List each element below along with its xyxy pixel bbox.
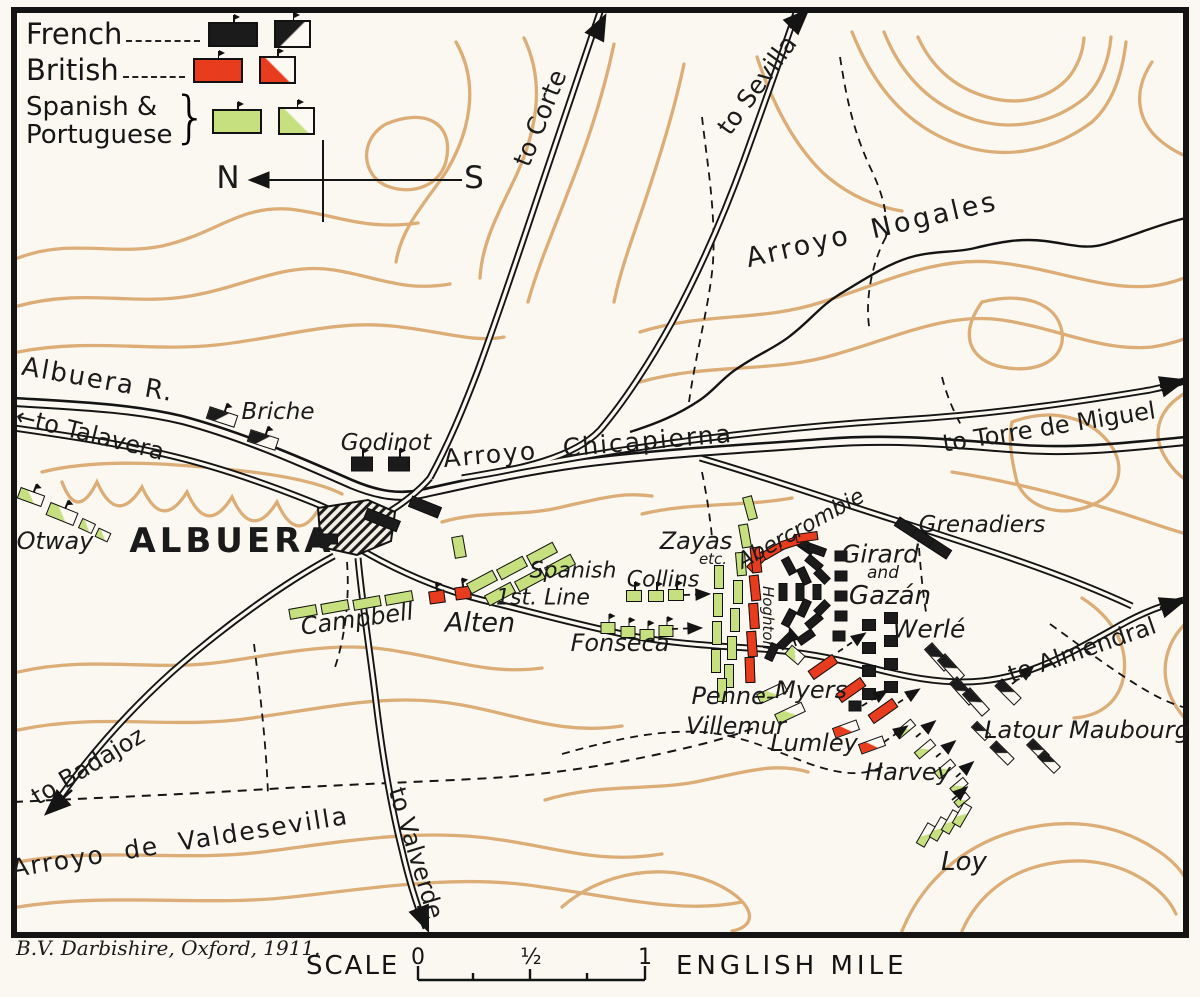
label-to-corte: to Corte bbox=[508, 66, 573, 171]
flag-icon bbox=[237, 102, 239, 111]
scale-tick-half: ½ bbox=[520, 945, 541, 970]
legend-label-spanish-portuguese: Spanish & Portuguese bbox=[26, 93, 173, 149]
label-and: and bbox=[867, 563, 899, 583]
label-arroyo-de-valdesevilla: Arroyo de Valdesevilla bbox=[9, 801, 351, 883]
label-alten: Alten bbox=[445, 608, 515, 639]
label-loy: Loy bbox=[941, 847, 987, 877]
label-to-almendral: to Almendral bbox=[1004, 612, 1159, 689]
label-godinot: Godinot bbox=[341, 430, 432, 456]
label-to-sevilla: to Sevilla bbox=[711, 30, 802, 140]
label-etc: etc. bbox=[699, 550, 727, 568]
legend-leader bbox=[126, 40, 200, 42]
label-grenadiers: Grenadiers bbox=[919, 512, 1046, 538]
legend-swatch-british-solid bbox=[193, 58, 243, 83]
legend-label-british: British bbox=[26, 53, 119, 87]
label-albuera: ALBUERA bbox=[129, 521, 334, 561]
label-briche: Briche bbox=[242, 399, 315, 425]
label-collins: Collins bbox=[627, 568, 700, 593]
label-to-valverde: to Valverde bbox=[383, 784, 450, 922]
label-campbell: Campbell bbox=[299, 597, 415, 641]
label-n: N bbox=[216, 160, 239, 196]
label-myers: Myers bbox=[775, 676, 847, 704]
label-s: S bbox=[464, 160, 484, 196]
label-otway: Otway bbox=[17, 527, 94, 555]
scale-tick-0: 0 bbox=[411, 945, 425, 970]
label-spanish: Spanish bbox=[530, 559, 617, 584]
flag-icon bbox=[297, 100, 299, 109]
label-to-talavera: ←to Talavera bbox=[13, 402, 167, 466]
scale-unit: ENGLISH MILE bbox=[676, 951, 908, 981]
label-gaz-n: Gazán bbox=[849, 581, 931, 611]
legend-label-french: French bbox=[26, 17, 122, 51]
legend-swatch-french-solid bbox=[208, 22, 258, 47]
legend-swatch-spanish-cavalry bbox=[278, 107, 315, 135]
legend-row-french: French bbox=[26, 16, 326, 52]
label-harvey: Harvey bbox=[865, 758, 951, 786]
albuera-battle-map: NSto Corteto SevillaArroyo NogalesAlbuer… bbox=[0, 0, 1200, 997]
label-penne: Penne- bbox=[691, 682, 774, 710]
legend-row-british: British bbox=[26, 52, 326, 88]
flag-icon bbox=[293, 13, 295, 22]
label-werl: Werlé bbox=[893, 615, 966, 644]
label-arroyo-nogales: Arroyo Nogales bbox=[743, 186, 1001, 274]
legend-leader bbox=[123, 76, 185, 78]
legend: French British Spanish & Portuguese } bbox=[26, 16, 326, 154]
label-lumley: Lumley bbox=[770, 729, 858, 757]
label-albuera-r: Albuera R. bbox=[19, 352, 176, 408]
flag-icon bbox=[277, 49, 279, 58]
legend-swatch-french-cavalry bbox=[274, 20, 311, 48]
flag-icon bbox=[233, 15, 235, 24]
label-hoghton: Hoghton bbox=[759, 586, 777, 650]
legend-brace: } bbox=[173, 85, 209, 150]
flag-icon bbox=[218, 51, 220, 60]
legend-row-spanish-portuguese: Spanish & Portuguese } bbox=[26, 88, 326, 154]
legend-swatch-spanish-solid bbox=[212, 109, 262, 134]
label-arroyo-chicapierna: Arroyo Chicapierna bbox=[442, 419, 734, 473]
scale-tick-1: 1 bbox=[638, 945, 652, 970]
label-to-badajoz: to Badajoz bbox=[26, 721, 149, 810]
label-latour-maubourg: Latour Maubourg bbox=[984, 716, 1190, 744]
label-1st-line: 1st. Line bbox=[496, 586, 590, 611]
label-fonseca: Fonseca bbox=[571, 629, 670, 657]
legend-swatch-british-cavalry bbox=[259, 56, 296, 84]
label-to-torre-de-miguel: to Torre de Miguel bbox=[941, 396, 1158, 457]
scale-title: SCALE bbox=[306, 951, 399, 981]
cartographer-credit: B.V. Darbishire, Oxford, 1911. bbox=[16, 936, 321, 960]
